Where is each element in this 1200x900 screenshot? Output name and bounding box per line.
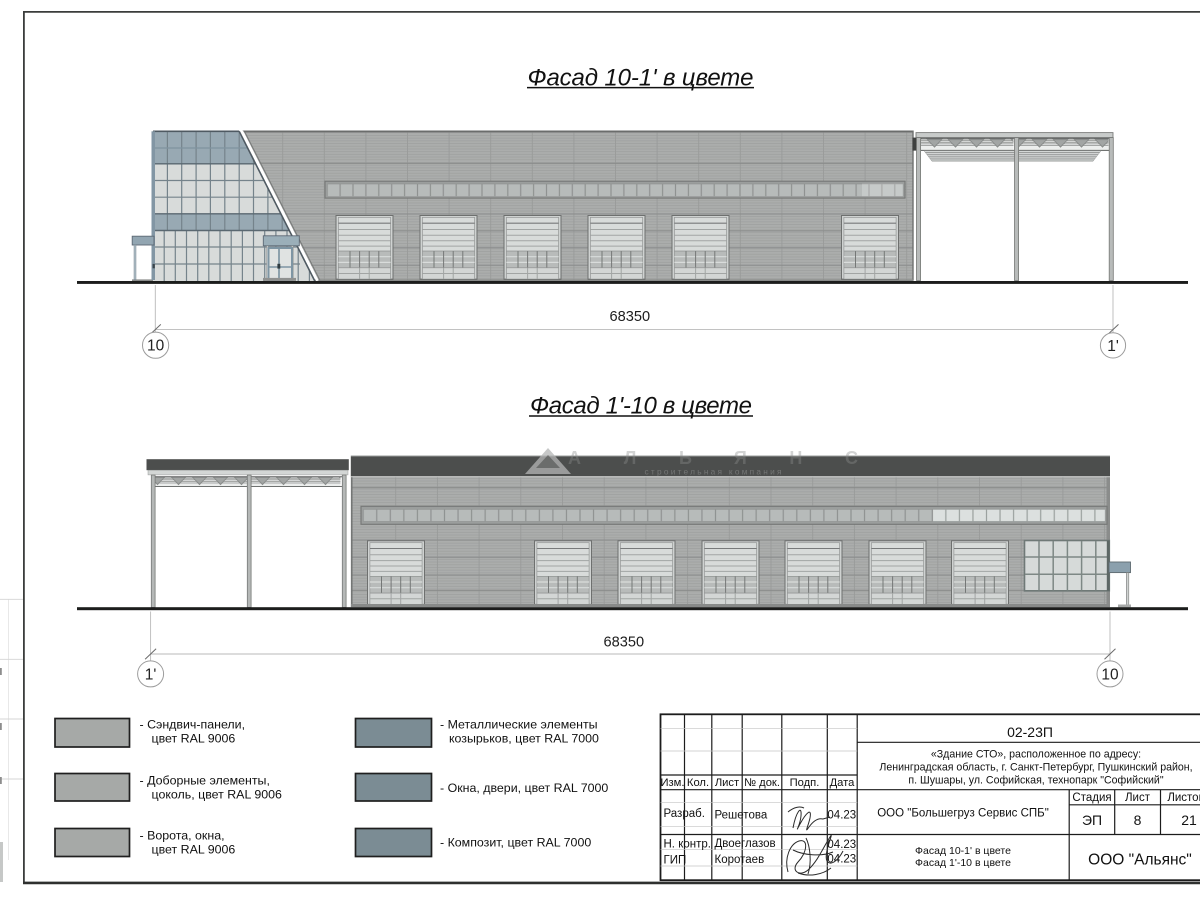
svg-text:Двоеглазов: Двоеглазов: [715, 838, 776, 850]
svg-text:21: 21: [1181, 812, 1197, 828]
svg-text:Кол.: Кол.: [687, 777, 709, 789]
svg-text:ГИП: ГИП: [664, 855, 687, 867]
svg-text:цвет RAL 9006: цвет RAL 9006: [152, 842, 236, 856]
svg-text:Решетова: Решетова: [715, 810, 768, 822]
svg-text:ООО "Альянс": ООО "Альянс": [1088, 852, 1192, 869]
svg-text:строительная компания: строительная компания: [645, 467, 782, 477]
svg-text:10: 10: [147, 338, 165, 355]
svg-text:Дата: Дата: [830, 777, 856, 789]
svg-text:02-23П: 02-23П: [1007, 724, 1053, 740]
svg-text:Лист: Лист: [1125, 792, 1151, 804]
svg-text:п. Шушары, ул. Софийская, техн: п. Шушары, ул. Софийская, технопарк "Соф…: [908, 775, 1163, 787]
svg-text:1': 1': [145, 666, 157, 683]
svg-text:68350: 68350: [610, 309, 651, 325]
svg-text:68350: 68350: [604, 635, 645, 651]
svg-text:1': 1': [1107, 338, 1119, 355]
svg-text:04.23: 04.23: [827, 854, 856, 866]
svg-text:Фасад 1'-10 в цвете: Фасад 1'-10 в цвете: [915, 857, 1011, 869]
svg-text:- Композит, цвет RAL 7000: - Композит, цвет RAL 7000: [440, 835, 591, 849]
svg-text:Коротаев: Коротаев: [715, 854, 765, 866]
svg-text:Подп.: Подп.: [790, 777, 820, 789]
svg-text:10: 10: [1101, 666, 1119, 683]
svg-text:козырьков, цвет RAL 7000: козырьков, цвет RAL 7000: [449, 731, 599, 745]
svg-text:- Ворота, окна,: - Ворота, окна,: [140, 828, 225, 842]
svg-text:Листов: Листов: [1167, 792, 1200, 804]
svg-text:ООО "Большегруз Сервис СПБ": ООО "Большегруз Сервис СПБ": [877, 808, 1049, 820]
svg-text:«Здание СТО», расположенное по: «Здание СТО», расположенное по адресу:: [931, 749, 1141, 761]
svg-text:8: 8: [1134, 812, 1142, 828]
svg-text:Лист: Лист: [715, 777, 739, 789]
svg-text:№ док.: № док.: [744, 777, 780, 789]
svg-text:цвет RAL 9006: цвет RAL 9006: [152, 731, 236, 745]
svg-text:Ленинградская область, г. Санк: Ленинградская область, г. Санкт-Петербур…: [879, 762, 1192, 774]
svg-text:- Металлические элементы: - Металлические элементы: [440, 717, 598, 731]
svg-text:Разраб.: Разраб.: [664, 808, 705, 820]
svg-text:цоколь, цвет RAL 9006: цоколь, цвет RAL 9006: [152, 787, 282, 801]
svg-text:- Сэндвич-панели,: - Сэндвич-панели,: [140, 717, 246, 731]
svg-text:Н. контр.: Н. контр.: [664, 839, 711, 851]
svg-text:ЭП: ЭП: [1082, 812, 1102, 828]
svg-text:04.23: 04.23: [827, 810, 856, 822]
svg-text:Фасад 10-1' в цвете: Фасад 10-1' в цвете: [915, 845, 1011, 857]
svg-text:- Доборные элементы,: - Доборные элементы,: [140, 773, 270, 787]
svg-text:Стадия: Стадия: [1072, 792, 1111, 804]
svg-text:- Окна, двери, цвет RAL 7000: - Окна, двери, цвет RAL 7000: [440, 781, 608, 795]
svg-text:04.23: 04.23: [827, 839, 856, 851]
svg-text:Изм.: Изм.: [661, 777, 685, 789]
